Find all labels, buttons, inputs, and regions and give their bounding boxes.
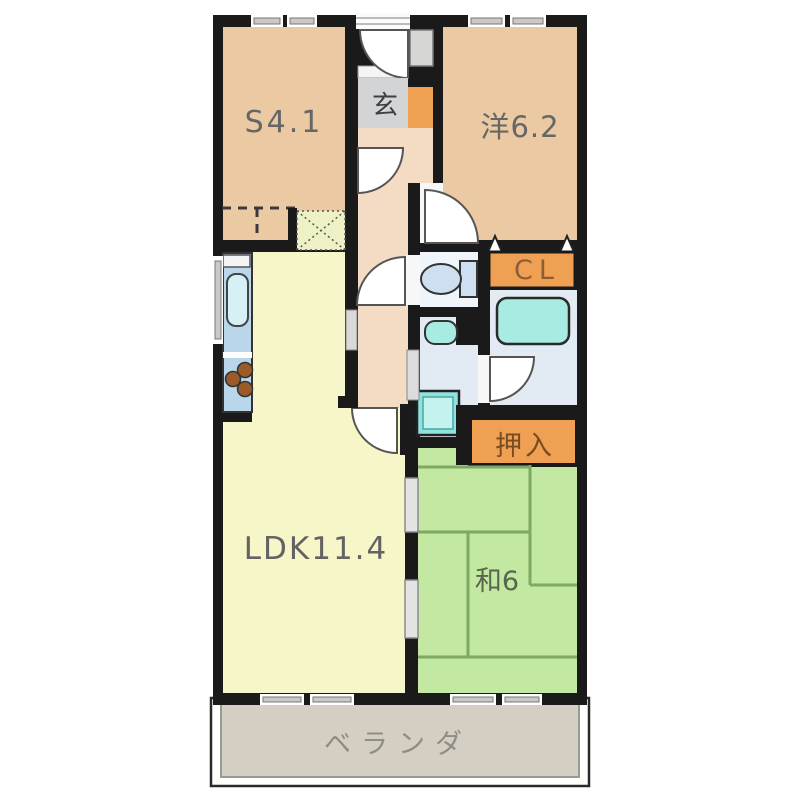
hallway-hatch-panel [346,310,357,350]
kitchen-area [223,253,253,412]
service-room-label: S4.1 [245,105,324,140]
meter-box [410,30,433,66]
washroom-wall-stub [456,312,478,345]
ldk-label: LDK11.4 [244,531,389,567]
bathroom-area [478,290,577,405]
washroom-sliding-door [407,350,419,400]
futon-closet-west-wall [456,405,470,465]
washing-machine-inner [423,397,453,429]
kitchen-counter-end-wall [223,412,252,422]
futon-closet-label: 押入 [495,431,555,462]
washbasin-fixture [425,321,457,344]
veranda-label: ベランダ [324,729,472,760]
kitchen-shelf [223,255,250,267]
entrance-label: 玄 [372,91,398,121]
bathtub-fixture [497,298,569,344]
western-room-label: 洋6.2 [480,110,559,144]
fusuma-panel-1 [405,478,418,532]
veranda-area: ベランダ [211,698,589,786]
closet-area: CL [489,252,575,288]
futon-closet-area: 押入 [470,418,577,465]
refrigerator-nook-wall [288,208,297,252]
floor-plan-drawing: ベランダ 玄 S4.1 洋6.2 C [0,0,800,800]
japanese-room-veranda-window [450,694,542,705]
entrance-sill-line-2 [356,23,410,25]
fusuma-panel-2 [405,580,418,638]
stove-burner-3 [238,382,253,397]
kitchen-side-window [213,256,223,344]
stove-burner-2 [238,363,253,378]
entrance-sill-line-1 [356,17,410,19]
japanese-room-label: 和6 [475,566,519,597]
toilet-bowl [421,264,461,294]
toilet-tank [460,261,477,297]
kitchen-counter-divider [223,352,252,358]
shoe-cabinet [408,87,433,128]
hallway-bottom-wall [338,396,358,408]
entrance-recess [356,13,410,29]
closet-label: CL [514,255,560,286]
floor-plan-page: ベランダ 玄 S4.1 洋6.2 C [0,0,800,800]
toilet-door-gap [406,255,420,305]
bathroom-door-gap [478,355,490,403]
kitchen-sink [227,274,248,326]
